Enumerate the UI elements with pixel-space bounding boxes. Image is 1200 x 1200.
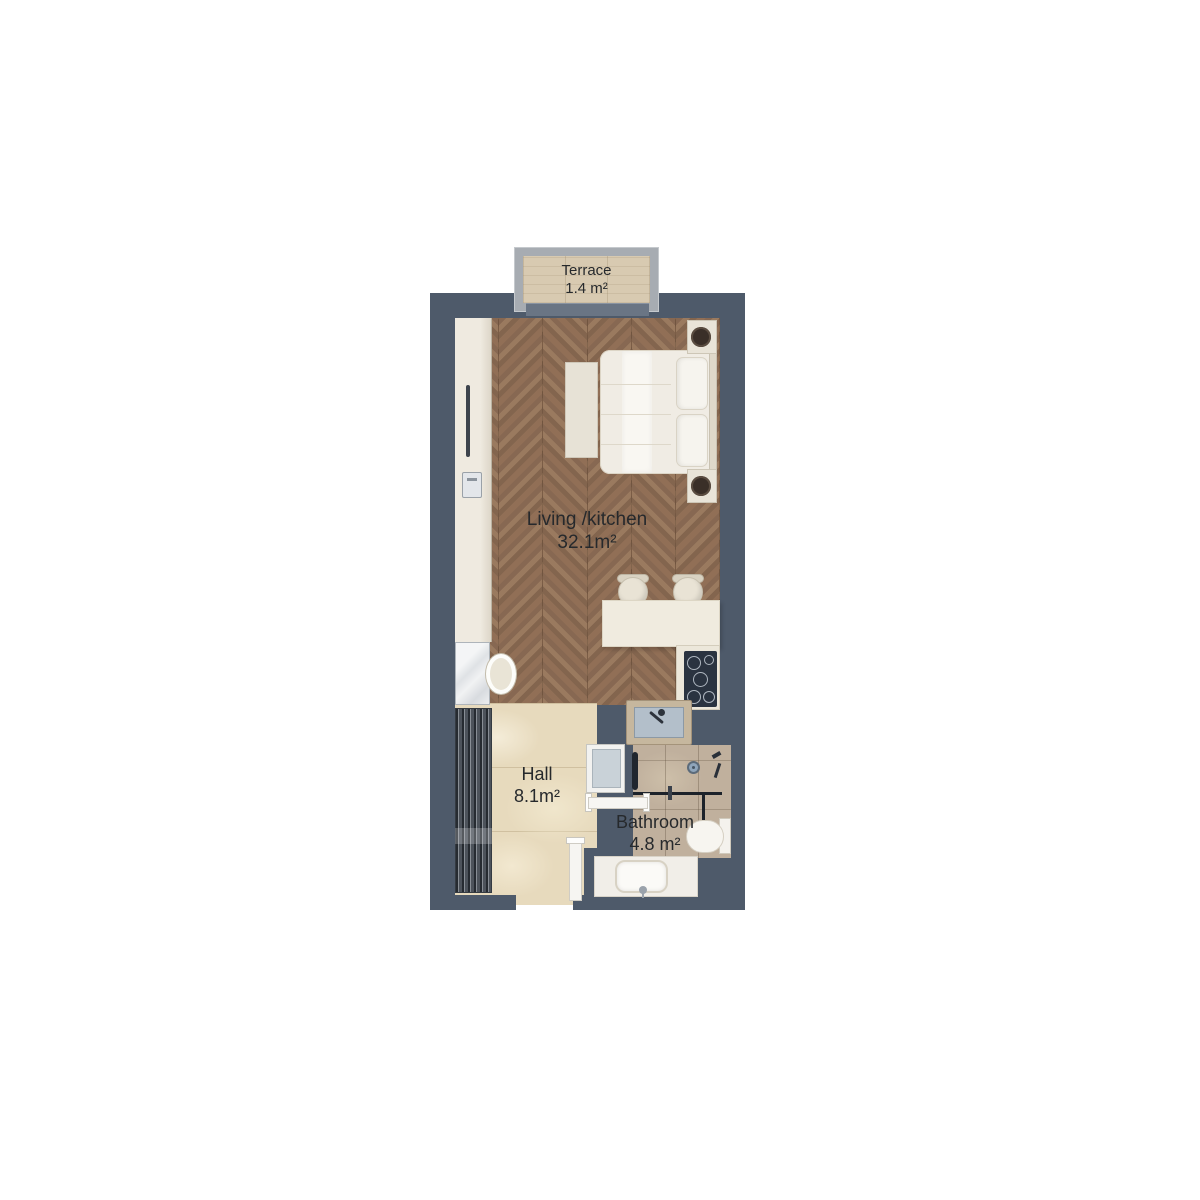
bathroom-door: [588, 797, 648, 809]
shower-glass-handle: [668, 786, 672, 800]
bed-headboard: [709, 347, 717, 478]
bathroom-name: Bathroom: [593, 812, 717, 834]
pillow: [676, 357, 708, 410]
kitchen-faucet-base: [658, 709, 665, 716]
side-basin: [486, 654, 516, 694]
shower-head: [687, 761, 700, 774]
bed-fold-line: [601, 444, 671, 445]
side-counter: [455, 642, 490, 705]
entrance-door: [569, 843, 582, 901]
balcony-door: [526, 303, 649, 316]
burner: [703, 691, 715, 703]
bed-bench: [565, 362, 598, 458]
pillow: [676, 414, 708, 467]
bathroom-faucet-stem: [642, 892, 644, 898]
living-label-group: Living /kitchen 32.1m²: [487, 508, 687, 554]
living-name: Living /kitchen: [487, 508, 687, 531]
floorplan-canvas: { "rooms": { "terrace": { "label": "Terr…: [0, 0, 1200, 1200]
towel-rail: [632, 752, 638, 790]
burner: [687, 656, 701, 670]
burner: [704, 655, 714, 665]
wall-switch: [462, 472, 482, 498]
bed-blanket: [622, 351, 652, 473]
coat-rack-shelf: [455, 828, 492, 844]
bed-fold-line: [601, 384, 671, 385]
table-lamp: [691, 327, 711, 347]
bathroom-label-group: Bathroom 4.8 m²: [593, 812, 717, 856]
kitchen-bar-counter: [602, 600, 720, 647]
hall-label-group: Hall 8.1m²: [477, 764, 597, 808]
living-area: 32.1m²: [487, 531, 687, 554]
burner: [693, 672, 708, 687]
wardrobe-handle: [466, 385, 470, 457]
terrace-label-group: Terrace 1.4 m²: [523, 262, 650, 299]
table-lamp: [691, 476, 711, 496]
entrance-opening: [516, 905, 573, 913]
bed-fold-line: [601, 414, 671, 415]
terrace-name: Terrace: [523, 262, 650, 280]
terrace-area: 1.4 m²: [523, 280, 650, 298]
hall-area: 8.1m²: [477, 786, 597, 808]
bathroom-area: 4.8 m²: [593, 834, 717, 856]
cooktop: [684, 651, 717, 707]
entrance-threshold: [516, 895, 573, 905]
hall-name: Hall: [477, 764, 597, 786]
